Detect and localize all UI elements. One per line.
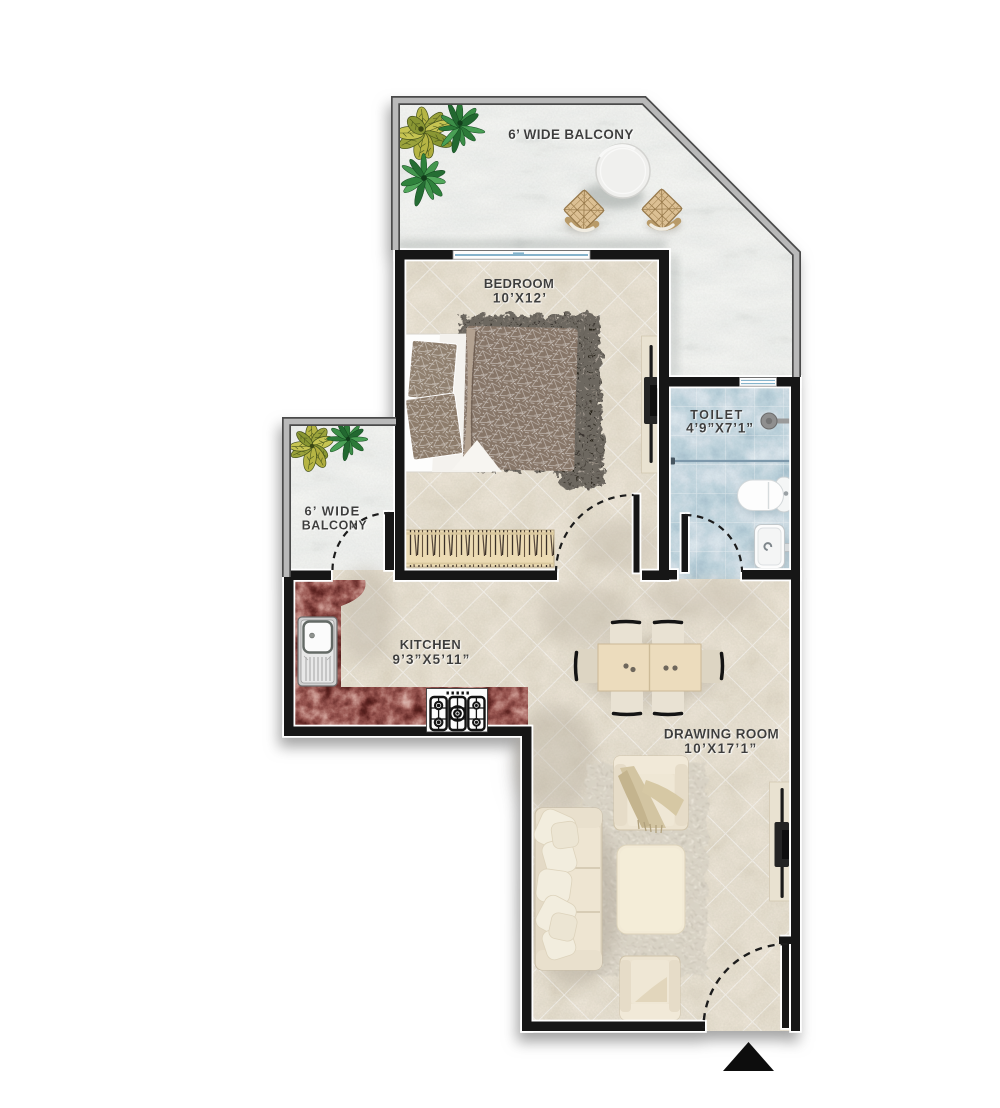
svg-text:9’3”X5’11”: 9’3”X5’11” (392, 652, 470, 667)
svg-text:10’X17’1”: 10’X17’1” (684, 741, 757, 756)
svg-text:4’9”X7’1”: 4’9”X7’1” (686, 421, 754, 436)
svg-text:DRAWING ROOM: DRAWING ROOM (664, 727, 779, 742)
svg-text:BEDROOM: BEDROOM (484, 276, 554, 291)
svg-text:10’X12’: 10’X12’ (493, 291, 547, 306)
svg-text:6’ WIDE: 6’ WIDE (304, 504, 360, 519)
svg-text:KITCHEN: KITCHEN (400, 637, 462, 652)
svg-text:BALCONY: BALCONY (302, 519, 368, 533)
svg-text:6’ WIDE BALCONY: 6’ WIDE BALCONY (508, 127, 633, 142)
